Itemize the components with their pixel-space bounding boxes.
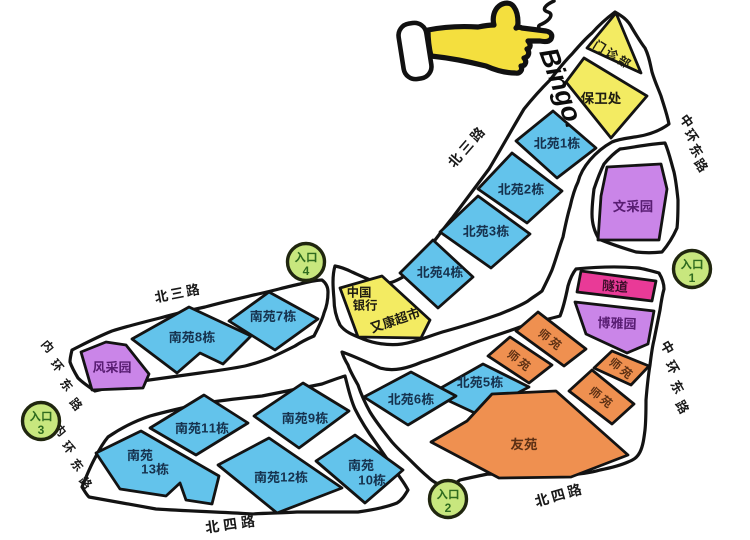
svg-text:3: 3 [149, 462, 156, 477]
svg-text:0: 0 [366, 473, 373, 488]
svg-text:8: 8 [195, 330, 202, 345]
svg-text:6: 6 [414, 392, 421, 407]
svg-text:1: 1 [689, 271, 696, 285]
svg-text:1: 1 [141, 462, 148, 477]
svg-text:1: 1 [560, 136, 567, 151]
svg-text:3: 3 [38, 423, 45, 437]
svg-text:2: 2 [288, 470, 295, 485]
svg-text:2: 2 [445, 501, 452, 515]
svg-text:1: 1 [201, 421, 208, 436]
svg-text:1: 1 [280, 470, 287, 485]
svg-text:2: 2 [524, 182, 531, 197]
svg-text:5: 5 [483, 375, 490, 390]
svg-text:4: 4 [303, 264, 310, 278]
svg-text:7: 7 [276, 309, 283, 324]
svg-text:4: 4 [443, 265, 451, 280]
svg-text:3: 3 [489, 224, 496, 239]
svg-text:9: 9 [308, 411, 315, 426]
svg-text:1: 1 [209, 421, 216, 436]
svg-text:1: 1 [358, 473, 365, 488]
